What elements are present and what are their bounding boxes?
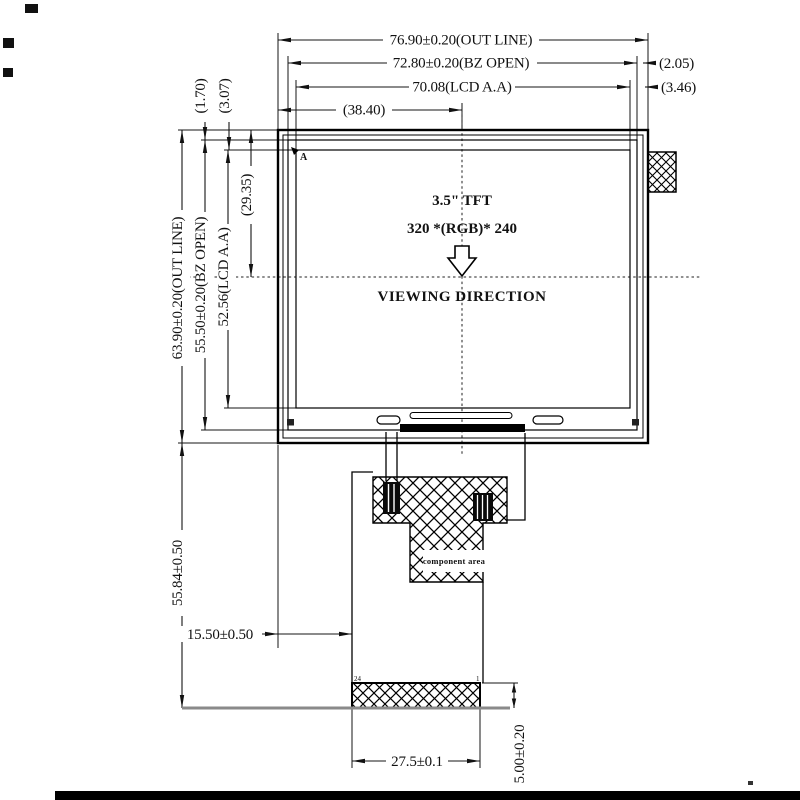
dim-left-center-offset: (29.35) (239, 174, 255, 217)
pin-24-label: 24 (354, 675, 362, 683)
fpc-connector-right (473, 493, 493, 521)
dim-fpc-length: 55.84±0.50 (170, 540, 186, 606)
scan-artifacts (3, 4, 800, 800)
dim-left-lcd-aa: 52.56(LCD A.A) (216, 227, 232, 326)
fpc-connector-left (383, 482, 400, 514)
inner-wall-rect (283, 135, 643, 438)
corner-a-label: A (300, 152, 308, 163)
dim-top-center-offset: (38.40) (343, 103, 386, 119)
dim-connector-width: 27.5±0.1 (391, 754, 443, 770)
dim-lefttop-aa-gap: (3.07) (217, 78, 233, 113)
drawing-page: A 3.5" TFT 320 *(RGB)* 240 VIEWING DIREC… (0, 0, 800, 800)
dimension-lines (182, 40, 658, 761)
corner-a-arrow-icon (291, 147, 299, 155)
dim-fpc-offset: 15.50±0.50 (187, 627, 253, 643)
fpc-end-connector (352, 683, 480, 708)
viewing-direction-text: VIEWING DIRECTION (378, 289, 547, 305)
dim-top-outline: 76.90±0.20(OUT LINE) (390, 33, 533, 49)
extension-lines (178, 33, 648, 768)
center-lines (188, 112, 700, 455)
dim-right-aa-gap: (3.46) (661, 80, 696, 96)
corner-mark-left (287, 419, 294, 426)
fpc-tail: component area 24 1 (182, 432, 525, 708)
dim-right-bz-gap: (2.05) (659, 56, 694, 72)
bezel-slot-right (533, 416, 563, 424)
fpc-bond-bar (400, 424, 525, 432)
dim-left-outline: 63.90±0.20(OUT LINE) (170, 216, 186, 359)
component-area-label: component area (423, 556, 486, 566)
corner-mark-right (632, 419, 639, 426)
viewing-direction-arrow-icon (448, 246, 476, 276)
module-size-text: 3.5" TFT (432, 193, 492, 209)
page-edge-bar (55, 791, 800, 800)
dim-lefttop-bz-gap: (1.70) (193, 78, 209, 113)
lcd-module-body: A (278, 130, 676, 443)
dim-top-lcd-aa: 70.08(LCD A.A) (412, 80, 511, 96)
side-tape-hatch (648, 152, 676, 192)
bezel-slot-center (410, 413, 512, 419)
dim-connector-height: 5.00±0.20 (512, 725, 528, 784)
dim-top-bz-open: 72.80±0.20(BZ OPEN) (393, 56, 530, 72)
dim-left-bz-open: 55.50±0.20(BZ OPEN) (193, 217, 209, 354)
module-resolution-text: 320 *(RGB)* 240 (407, 221, 517, 237)
pin-1-label: 1 (476, 675, 480, 683)
bezel-slot-left (377, 416, 400, 424)
bezel-open-rect (288, 140, 637, 430)
lcd-module-outline-drawing: A 3.5" TFT 320 *(RGB)* 240 VIEWING DIREC… (0, 0, 800, 800)
outline-rect (278, 130, 648, 443)
active-area-rect (296, 150, 630, 408)
